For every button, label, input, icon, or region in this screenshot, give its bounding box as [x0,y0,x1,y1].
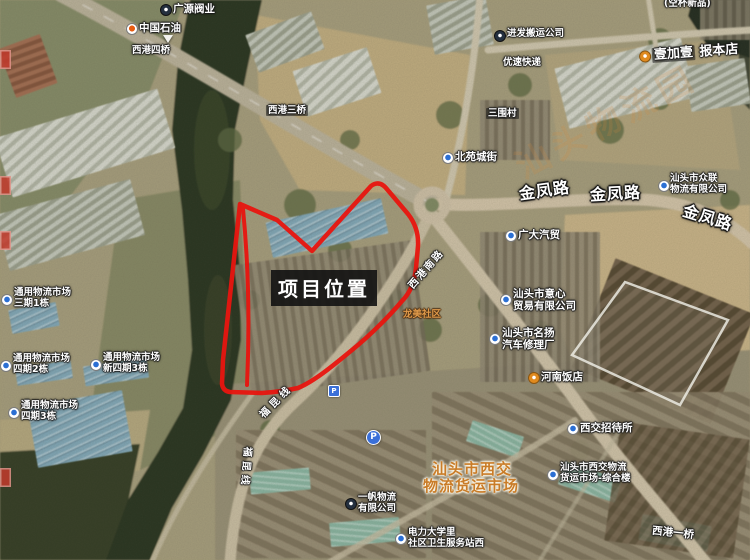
poi-label-clinic: 电力大学里社区卫生服务站西 [408,528,484,550]
poi-label-guangda: 广大汽贸 [518,229,560,241]
petrochina-icon [126,23,138,35]
poi-label-tongyong-4: 通用物流市场四期3栋 [21,401,78,423]
poi-label-xijiao-inn: 西交招待所 [580,422,633,434]
poi-icon [500,294,512,306]
poi-label-mingyang: 汕头市名扬汽车修理厂 [502,327,555,351]
poi-label-tongyong-1: 通用物流市场三期1栋 [14,288,71,310]
watermark-stamp [0,176,11,195]
poi-label-yixin: 汕头市意心贸易有限公司 [513,288,576,312]
area-label-xijiao-market: 汕头市西交物流货运市场 [423,461,519,496]
parking-icon: P [328,385,340,397]
watermark-stamp [0,231,11,250]
poi-label-tongyong-2: 通用物流市场四期2栋 [13,354,70,376]
poi-label-kongbei: (空杯新品) [664,0,711,10]
poi-label-guangyuan: 广源阀业 [173,3,215,15]
road-label-xigang3: 西港三桥 [266,106,308,117]
village-label-sanwei: 三围村 [486,109,519,120]
satellite-map: 项目位置 汕头物流园 广源阀业 中国石油 西港四桥 西港三桥 进发搬运公司 优速… [0,0,750,560]
road-label-xigang4: 西港四桥 [132,46,170,57]
poi-icon [345,498,357,510]
map-pin-icon [163,35,173,43]
poi-label-yousu: 优速快递 [503,58,541,69]
poi-icon [494,30,506,42]
road-label-jinfeng-2: 金凤路 [590,184,642,205]
poi-label-jinfa: 进发搬运公司 [507,29,564,40]
poi-icon [90,359,102,371]
poi-icon [658,180,670,192]
poi-icon [8,407,20,419]
parking-icon: P [366,430,381,445]
poi-label-zhonglian: 汕头市众联物流有限公司 [670,174,727,196]
poi-icon [489,333,501,345]
poi-icon [505,230,517,242]
watermark-stamp [0,468,11,487]
poi-label-beiyuan: 北苑城街 [455,151,497,163]
watermark-stamp [0,50,11,69]
poi-label-henan: 河南饭店 [541,371,583,383]
poi-icon [567,423,579,435]
poi-icon [442,152,454,164]
poi-label-petrochina: 中国石油 [139,22,181,34]
poi-icon [395,533,407,545]
poi-icon [160,4,172,16]
poi-icon [528,372,540,384]
project-location-label: 项目位置 [271,270,377,306]
poi-icon [547,469,559,481]
poi-icon [1,294,13,306]
poi-label-yifan: 一帆物流有限公司 [358,493,396,515]
parking-lot-outline [572,282,728,405]
poi-label-tongyong-3: 通用物流市场新四期3栋 [103,353,160,375]
area-label-longmei: 龙美社区 [403,310,441,321]
poi-label-xijiao-complex: 汕头市西交物流货运市场-综合楼 [560,463,630,485]
poi-icon [0,360,12,372]
